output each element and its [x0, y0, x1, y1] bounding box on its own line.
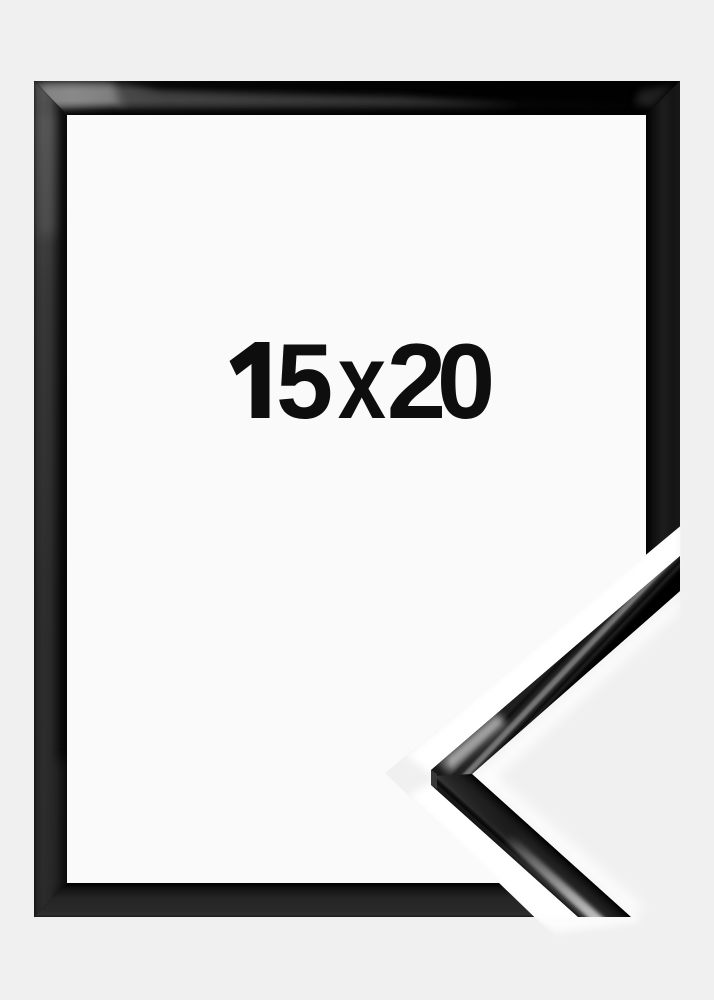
- svg-text:5: 5: [276, 322, 333, 441]
- svg-text:0: 0: [437, 322, 495, 441]
- svg-text:x: x: [338, 321, 386, 441]
